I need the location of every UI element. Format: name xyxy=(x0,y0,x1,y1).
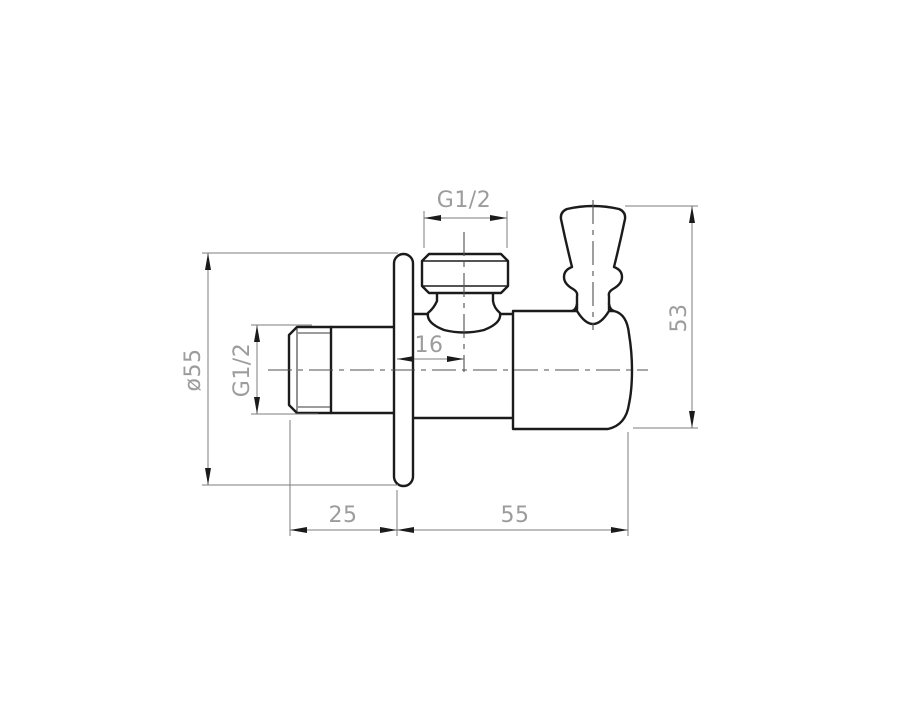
valve-outline xyxy=(289,206,632,486)
label-body-length: 55 xyxy=(501,503,530,528)
angle-valve-technical-drawing: G1/2 ø55 G1/2 16 53 25 55 xyxy=(0,0,900,720)
dim-top-thread xyxy=(424,211,507,248)
label-flange-diameter: ø55 xyxy=(181,349,206,392)
drawing-canvas: G1/2 ø55 G1/2 16 53 25 55 xyxy=(0,0,900,720)
label-inlet-thread: G1/2 xyxy=(230,343,255,397)
label-port-offset: 16 xyxy=(415,333,444,358)
label-overall-height: 53 xyxy=(667,304,692,333)
label-inlet-protrusion: 25 xyxy=(329,503,358,528)
label-top-thread: G1/2 xyxy=(437,188,491,213)
top-thread-nut xyxy=(422,254,508,293)
